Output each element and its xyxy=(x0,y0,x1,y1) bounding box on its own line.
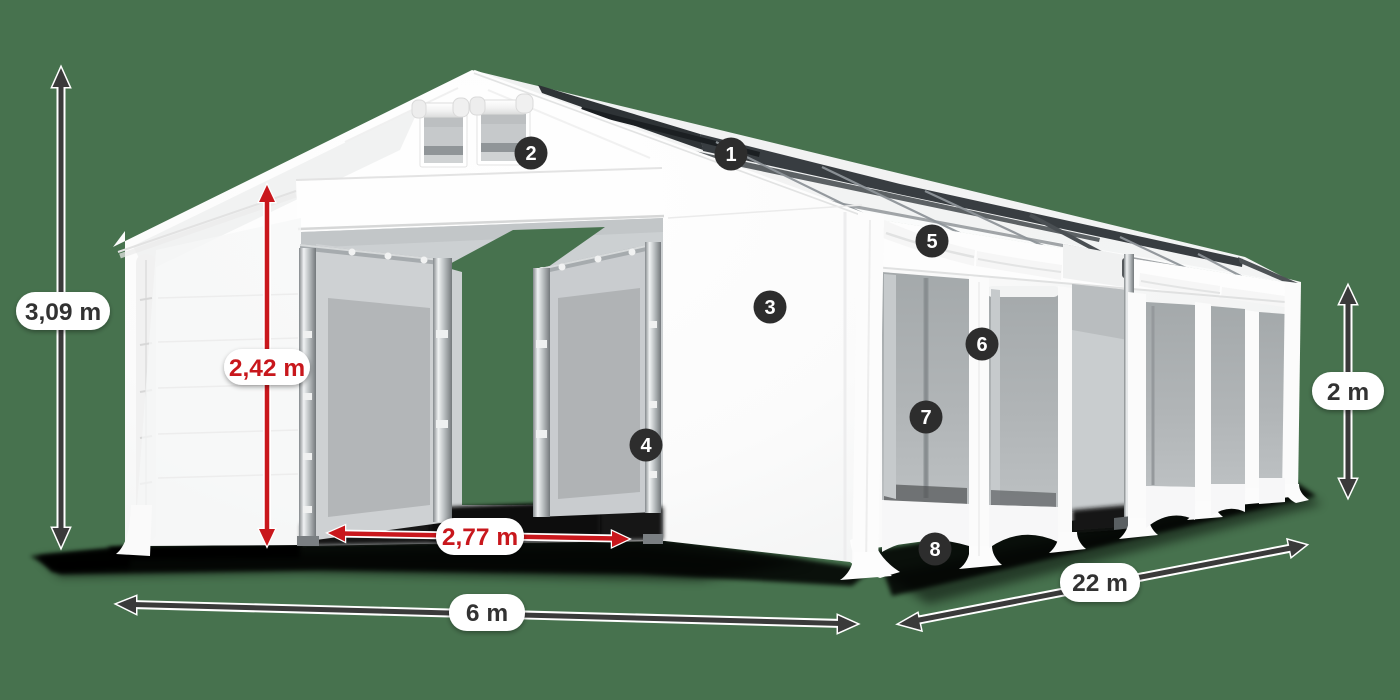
svg-text:6 m: 6 m xyxy=(466,600,508,627)
svg-text:22 m: 22 m xyxy=(1072,570,1128,597)
svg-text:8: 8 xyxy=(929,539,940,561)
svg-text:4: 4 xyxy=(640,435,652,457)
svg-text:3: 3 xyxy=(764,297,775,319)
svg-text:6: 6 xyxy=(976,334,987,356)
svg-text:2 m: 2 m xyxy=(1327,379,1369,406)
svg-text:1: 1 xyxy=(725,144,736,166)
svg-text:2: 2 xyxy=(525,143,536,165)
svg-text:2,42 m: 2,42 m xyxy=(229,355,305,382)
svg-text:3,09 m: 3,09 m xyxy=(25,299,101,326)
svg-text:2,77 m: 2,77 m xyxy=(442,524,518,551)
svg-text:7: 7 xyxy=(920,407,931,429)
svg-text:5: 5 xyxy=(926,231,937,253)
